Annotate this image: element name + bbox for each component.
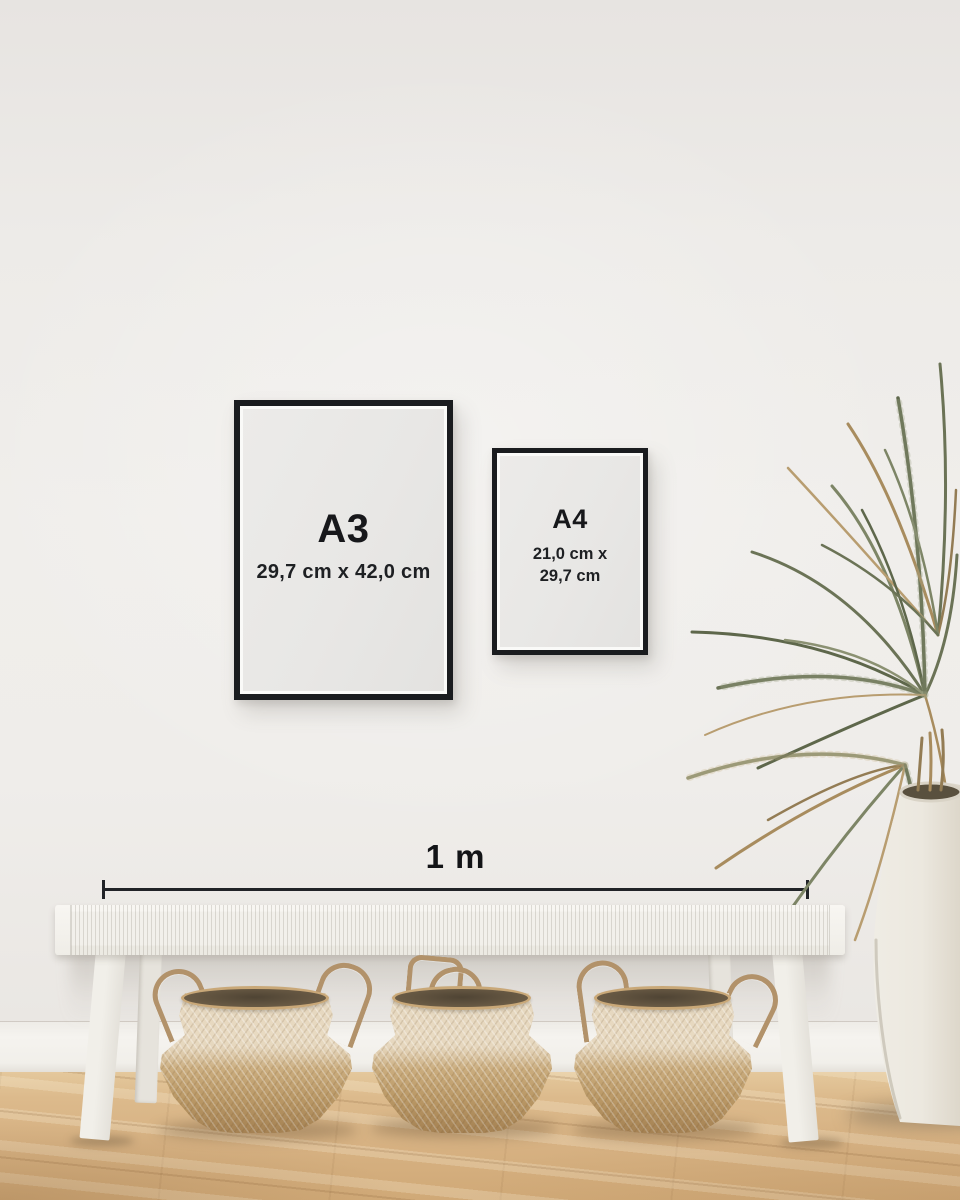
a4-dimensions-line2: 29,7 cm	[533, 565, 607, 587]
basket-body	[372, 993, 552, 1133]
a4-dimensions-text: 21,0 cm x 29,7 cm	[533, 543, 607, 588]
vase-icon	[874, 730, 960, 1126]
seagrass-basket-3	[574, 962, 752, 1133]
basket-rim	[594, 986, 732, 1010]
basket-rim	[392, 986, 531, 1010]
room-scene: A3 29,7 cm x 42,0 cm A4 21,0 cm x 29,7 c…	[0, 0, 960, 1200]
basket-body	[574, 993, 752, 1133]
basket-rim	[181, 986, 329, 1010]
seagrass-basket-2	[372, 958, 552, 1133]
a3-size-label: A3	[317, 507, 369, 551]
bench-seat	[55, 905, 845, 955]
picture-frame-a3: A3 29,7 cm x 42,0 cm	[234, 400, 453, 700]
a3-dimensions-text: 29,7 cm x 42,0 cm	[256, 561, 430, 584]
a4-size-label: A4	[552, 505, 588, 535]
a4-dimensions-line1: 21,0 cm x	[533, 543, 607, 565]
seagrass-basket-1	[160, 962, 352, 1133]
basket-body	[160, 993, 352, 1133]
